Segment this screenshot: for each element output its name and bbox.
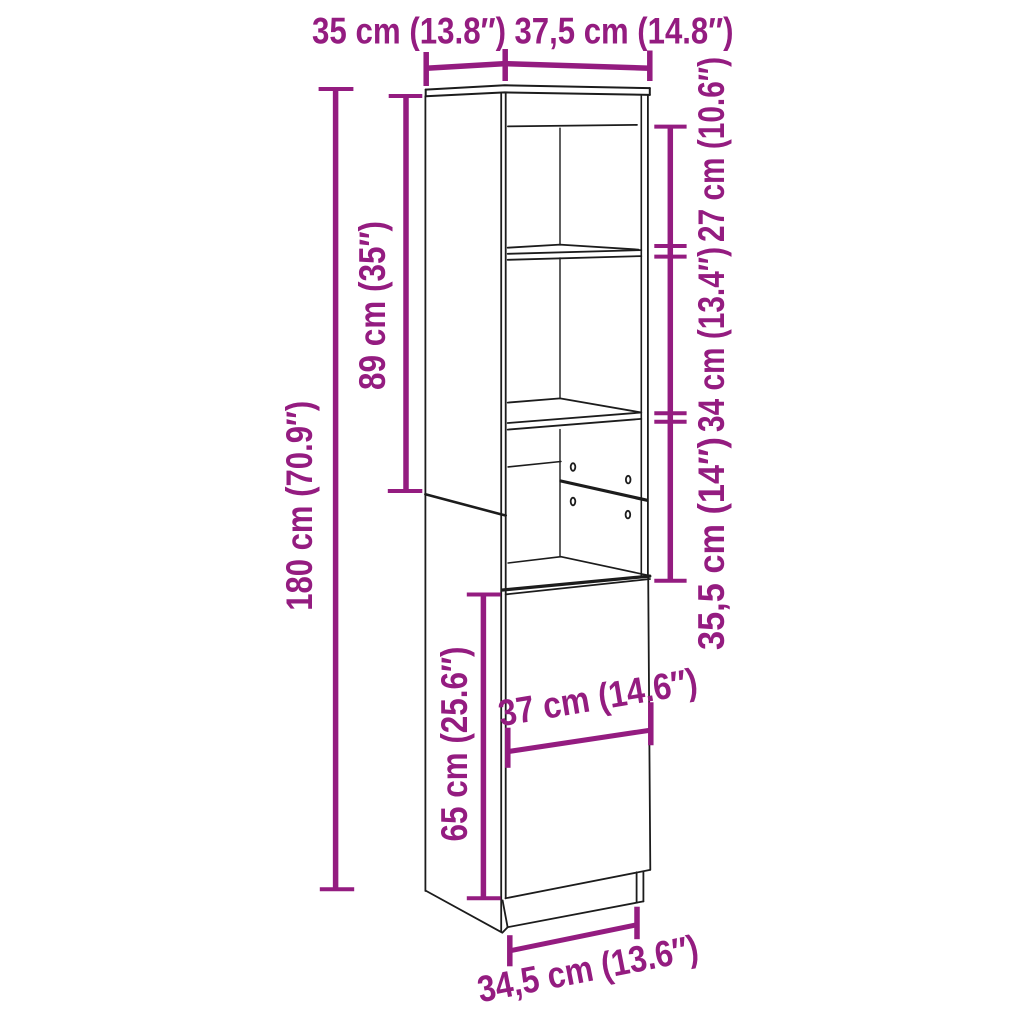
svg-text:37,5 cm (14.8″): 37,5 cm (14.8″) <box>515 10 734 51</box>
svg-text:65 cm (25.6″): 65 cm (25.6″) <box>434 647 475 842</box>
svg-text:180 cm (70.9″): 180 cm (70.9″) <box>279 401 320 611</box>
svg-text:35 cm (13.8″): 35 cm (13.8″) <box>312 10 506 51</box>
svg-text:35,5 cm (14″): 35,5 cm (14″) <box>691 437 732 650</box>
svg-text:27 cm (10.6″): 27 cm (10.6″) <box>691 57 732 242</box>
svg-text:34 cm (13.4″): 34 cm (13.4″) <box>691 247 732 432</box>
svg-text:89 cm (35″): 89 cm (35″) <box>352 221 393 390</box>
